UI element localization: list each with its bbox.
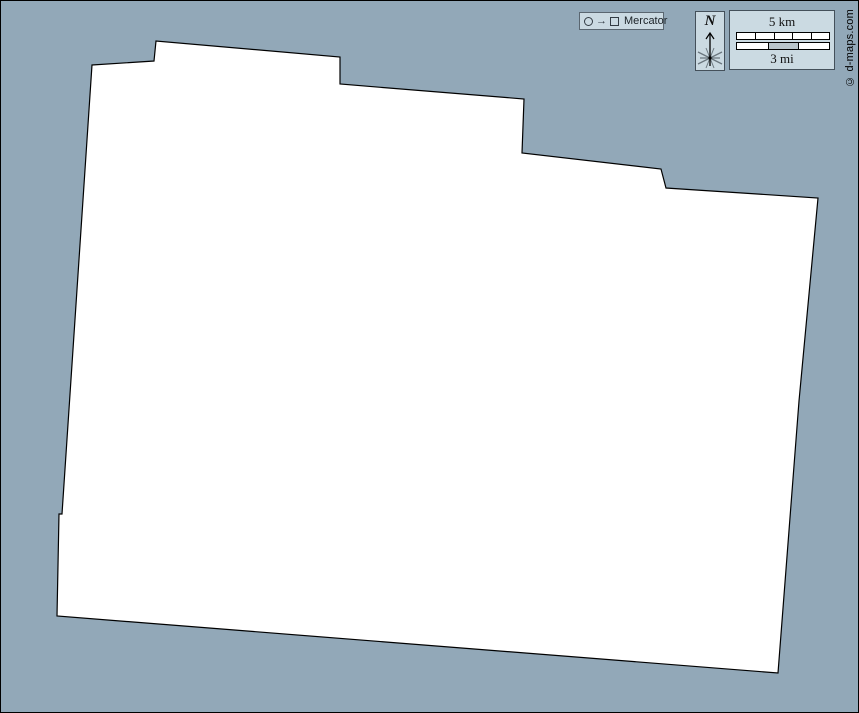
- scale-tick: [774, 33, 775, 39]
- scale-mi-label: 3 mi: [730, 51, 834, 67]
- scale-tick: [755, 33, 756, 39]
- compass-box: N: [695, 11, 725, 71]
- copyright-text: © d-maps.com: [844, 9, 856, 87]
- square-icon: [610, 17, 619, 26]
- scale-mi-bar: [736, 42, 830, 50]
- scale-mi-shaded-segment: [768, 43, 799, 49]
- projection-label: Mercator: [624, 15, 667, 27]
- projection-badge[interactable]: → Mercator: [579, 12, 664, 30]
- scale-tick: [811, 33, 812, 39]
- scale-tick: [792, 33, 793, 39]
- arrow-right-icon: →: [596, 16, 607, 27]
- north-label: N: [696, 13, 724, 30]
- compass-rose-icon: [696, 30, 724, 70]
- map-canvas: → Mercator N 5 km: [0, 0, 859, 713]
- map-region-outline: [57, 41, 818, 673]
- scale-box: 5 km 3 mi: [729, 10, 835, 70]
- map-svg: [1, 1, 858, 712]
- scale-km-label: 5 km: [730, 14, 834, 30]
- scale-km-bar: [736, 32, 830, 40]
- circle-icon: [584, 17, 593, 26]
- scale-tick: [768, 43, 769, 49]
- scale-tick: [798, 43, 799, 49]
